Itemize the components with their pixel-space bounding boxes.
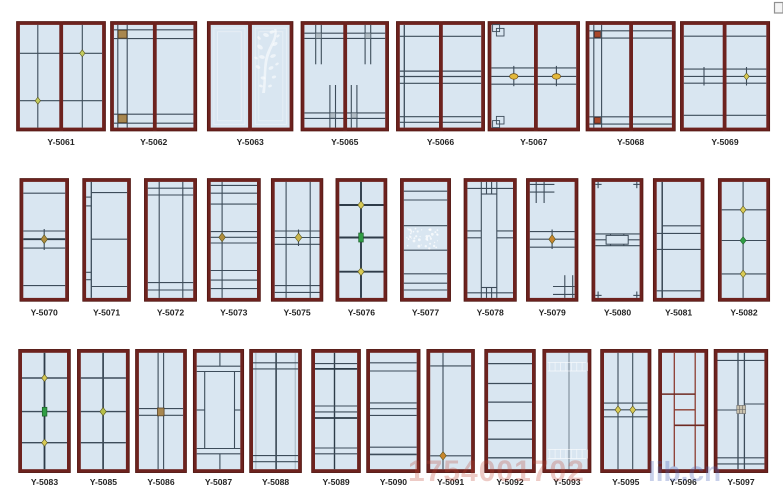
svg-text:Y-5083: Y-5083 xyxy=(31,477,58,487)
svg-text:lib.cn: lib.cn xyxy=(648,456,721,487)
svg-text:Y-5075: Y-5075 xyxy=(283,308,310,318)
svg-text:Y-5087: Y-5087 xyxy=(205,477,232,487)
svg-text:Y-5085: Y-5085 xyxy=(90,477,117,487)
svg-text:Y-5063: Y-5063 xyxy=(237,137,264,147)
svg-text:Y-5065: Y-5065 xyxy=(331,137,358,147)
svg-text:Y-5086: Y-5086 xyxy=(147,477,174,487)
svg-text:Y-5089: Y-5089 xyxy=(322,477,349,487)
svg-text:Y-5095: Y-5095 xyxy=(612,477,639,487)
svg-text:Y-5068: Y-5068 xyxy=(617,137,644,147)
svg-text:Y-5069: Y-5069 xyxy=(711,137,738,147)
svg-text:1754001702: 1754001702 xyxy=(408,455,585,488)
svg-text:Y-5088: Y-5088 xyxy=(262,477,289,487)
svg-text:Y-5077: Y-5077 xyxy=(412,308,439,318)
svg-text:Y-5097: Y-5097 xyxy=(727,477,754,487)
svg-text:Y-5061: Y-5061 xyxy=(47,137,74,147)
svg-text:Y-5081: Y-5081 xyxy=(665,308,692,318)
svg-text:Y-5073: Y-5073 xyxy=(220,308,247,318)
svg-text:Y-5080: Y-5080 xyxy=(604,308,631,318)
svg-text:Y-5070: Y-5070 xyxy=(31,308,58,318)
svg-text:Y-5078: Y-5078 xyxy=(477,308,504,318)
svg-text:Y-5067: Y-5067 xyxy=(520,137,547,147)
svg-text:Y-5071: Y-5071 xyxy=(93,308,120,318)
svg-text:Y-5082: Y-5082 xyxy=(730,308,757,318)
svg-text:Y-5066: Y-5066 xyxy=(427,137,454,147)
svg-text:Y-5076: Y-5076 xyxy=(348,308,375,318)
svg-text:Y-5072: Y-5072 xyxy=(157,308,184,318)
svg-text:Y-5062: Y-5062 xyxy=(140,137,167,147)
svg-text:Y-5079: Y-5079 xyxy=(539,308,566,318)
svg-text:Y-5090: Y-5090 xyxy=(380,477,407,487)
